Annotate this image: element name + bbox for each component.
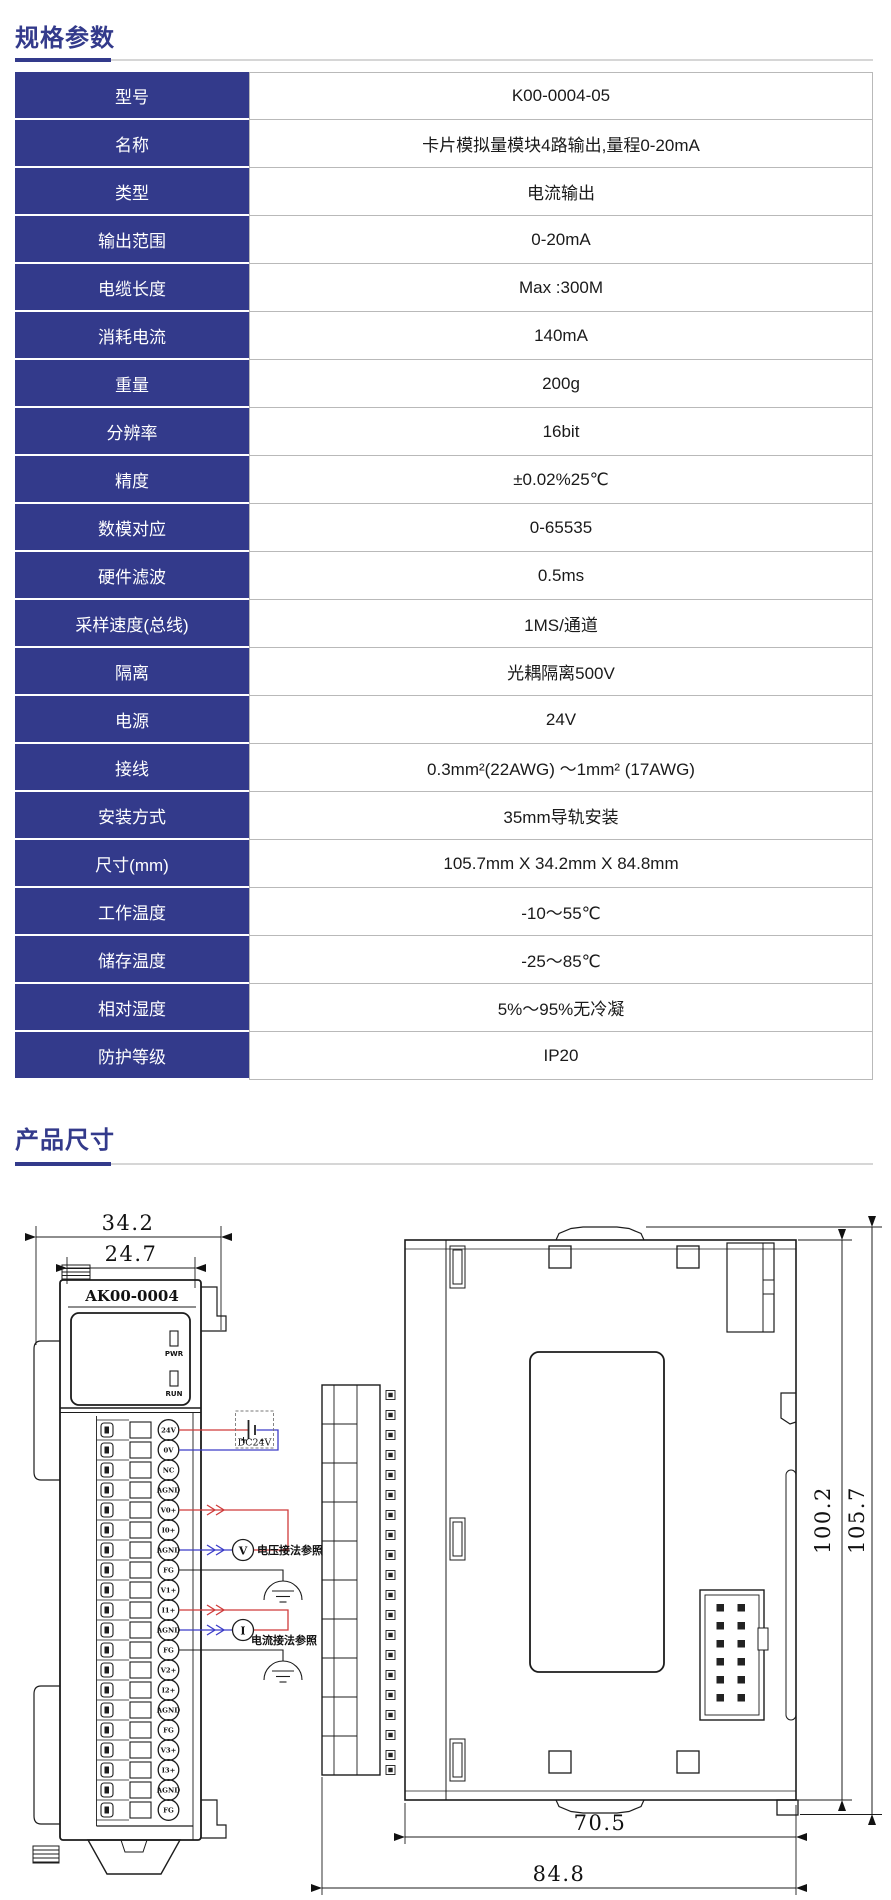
spec-label: 采样速度(总线) [15,600,249,648]
spec-label: 电源 [15,696,249,744]
terminal-label: 24V [161,1426,176,1434]
wiring-blue [179,1430,278,1635]
spec-label: 电缆长度 [15,264,249,312]
dimensions-section-title: 产品尺寸 [15,1120,115,1155]
front-bottom-hatch [33,1846,59,1863]
rule-accent-bar [15,58,111,62]
model-label: AK00-0004 [84,1287,179,1305]
spec-value: 16bit [249,408,873,456]
spec-label: 输出范围 [15,216,249,264]
dim-outer-depth-label: 84.8 [533,1862,586,1886]
wiring-red [179,1430,288,1630]
dim-outer-height-label: 105.7 [845,1486,869,1554]
product-datasheet-page: 规格参数 型号K00-0004-05 名称卡片模拟量模块4路输出,量程0-20m… [0,0,891,1900]
front-left-bump-top [34,1341,60,1480]
spec-label: 名称 [15,120,249,168]
spec-row: 电缆长度Max :300M [15,264,873,312]
spec-value: -10～55℃ [249,888,873,936]
spec-row: 硬件滤波0.5ms [15,552,873,600]
spec-value: 1MS/通道 [249,600,873,648]
spec-value: 200g [249,360,873,408]
side-rail-channel [786,1470,796,1720]
terminal-label: I1+ [162,1606,176,1614]
terminal-row-separators [97,1420,130,1820]
spec-value: IP20 [249,1032,873,1080]
terminal-label: V0+ [160,1506,177,1514]
side-top-bump [556,1227,644,1240]
side-terminal-connector [322,1385,395,1775]
spec-label: 分辨率 [15,408,249,456]
spec-table: 型号K00-0004-05 名称卡片模拟量模块4路输出,量程0-20mA 类型电… [15,72,873,1080]
spec-row: 电源24V [15,696,873,744]
spec-row: 名称卡片模拟量模块4路输出,量程0-20mA [15,120,873,168]
front-top-clip [62,1265,90,1280]
terminal-label: FG [163,1806,174,1814]
spec-value: 电流输出 [249,168,873,216]
specs-title-rule [15,59,873,61]
spec-label: 隔离 [15,648,249,696]
spec-row: 隔离光耦隔离500V [15,648,873,696]
front-right-hook-bottom [201,1800,226,1838]
rule-accent-bar [15,1162,111,1166]
spec-row: 消耗电流140mA [15,312,873,360]
spec-value: Max :300M [249,264,873,312]
spec-row: 重量200g [15,360,873,408]
terminal-label: AGND [156,1706,180,1714]
side-pin-connector [700,1590,768,1720]
dc24v-label: DC24V [238,1438,272,1449]
spec-label: 型号 [15,72,249,120]
spec-row: 型号K00-0004-05 [15,72,873,120]
terminal-label: I3+ [162,1766,176,1774]
current-meter-letter: I [240,1625,245,1638]
terminal-label: AGND [156,1786,180,1794]
spec-value: 卡片模拟量模块4路输出,量程0-20mA [249,120,873,168]
spec-label: 精度 [15,456,249,504]
spec-value: 24V [249,696,873,744]
front-right-hook-top [201,1287,226,1331]
terminal-label: I0+ [162,1526,176,1534]
terminal-screw-slots [130,1422,151,1818]
pwr-led-icon [170,1331,178,1346]
dim-inner-width-label: 24.7 [105,1242,158,1266]
spec-row: 类型电流输出 [15,168,873,216]
terminal-label: AGND [156,1626,180,1634]
spec-label: 安装方式 [15,792,249,840]
spec-row: 尺寸(mm)105.7mm X 34.2mm X 84.8mm [15,840,873,888]
spec-label: 硬件滤波 [15,552,249,600]
terminal-label: NC [163,1466,175,1474]
spec-label: 防护等级 [15,1032,249,1080]
side-bottom-foot [777,1800,798,1815]
dimensions-title-rule [15,1163,873,1165]
terminal-label: AGND [156,1546,180,1554]
spec-value: K00-0004-05 [249,72,873,120]
spec-value: 35mm导轨安装 [249,792,873,840]
side-slots [450,1246,465,1781]
spec-row: 安装方式35mm导轨安装 [15,792,873,840]
spec-row: 分辨率16bit [15,408,873,456]
spec-value: 105.7mm X 34.2mm X 84.8mm [249,840,873,888]
spec-label: 工作温度 [15,888,249,936]
side-rail-hook [781,1393,796,1424]
spec-value: 光耦隔离500V [249,648,873,696]
spec-label: 重量 [15,360,249,408]
spec-value: -25～85℃ [249,936,873,984]
spec-label: 相对湿度 [15,984,249,1032]
side-view [322,1227,882,1895]
spec-value: 0-20mA [249,216,873,264]
spec-row: 输出范围0-20mA [15,216,873,264]
spec-row: 相对湿度5%～95%无冷凝 [15,984,873,1032]
side-center-window [530,1352,664,1672]
terminal-label: FG [163,1566,174,1574]
spec-value: 5%～95%无冷凝 [249,984,873,1032]
product-dimension-drawing: 34.2 24.7 AK00-0004 PWR RUN 24V 0V NC AG… [0,1180,891,1900]
spec-label: 接线 [15,744,249,792]
spec-row: 储存温度-25～85℃ [15,936,873,984]
side-corner-squares [549,1246,699,1773]
terminal-label: FG [163,1726,174,1734]
side-dim-lines [322,1227,882,1895]
front-bottom-clip [88,1840,180,1874]
terminal-circles [158,1420,179,1821]
voltage-meter-letter: V [238,1545,248,1558]
pwr-led-label: PWR [165,1350,184,1358]
spec-row: 接线0.3mm²(22AWG) ～1mm² (17AWG) [15,744,873,792]
spec-value: 0.3mm²(22AWG) ～1mm² (17AWG) [249,744,873,792]
spec-label: 数模对应 [15,504,249,552]
spec-row: 采样速度(总线)1MS/通道 [15,600,873,648]
terminal-label: 0V [163,1446,174,1454]
run-led-icon [170,1371,178,1386]
spec-label: 类型 [15,168,249,216]
connector-pins [717,1604,746,1702]
terminal-label: AGND [156,1486,180,1494]
spec-value: ±0.02%25℃ [249,456,873,504]
spec-row: 工作温度-10～55℃ [15,888,873,936]
spec-value: 0.5ms [249,552,873,600]
spec-value: 0-65535 [249,504,873,552]
spec-label: 尺寸(mm) [15,840,249,888]
terminal-label: FG [163,1646,174,1654]
spec-row: 数模对应0-65535 [15,504,873,552]
spec-label: 消耗电流 [15,312,249,360]
spec-row: 防护等级IP20 [15,1032,873,1080]
spec-row: 精度±0.02%25℃ [15,456,873,504]
dim-outer-width-label: 34.2 [102,1211,155,1235]
side-body [405,1240,796,1800]
spec-label: 储存温度 [15,936,249,984]
terminal-label: I2+ [162,1686,176,1694]
specs-section-title: 规格参数 [15,18,115,53]
run-led-label: RUN [166,1390,183,1398]
dim-inner-depth-label: 70.5 [574,1811,627,1835]
front-left-bump-bottom [34,1686,60,1824]
terminal-label: V1+ [160,1586,177,1594]
terminal-label: V2+ [160,1666,177,1674]
spec-value: 140mA [249,312,873,360]
dim-inner-height-label: 100.2 [811,1486,835,1554]
side-top-right-block [727,1243,774,1332]
voltage-note: 电压接法参照 [257,1543,323,1557]
terminal-label: V3+ [160,1746,177,1754]
current-note: 电流接法参照 [251,1633,317,1647]
